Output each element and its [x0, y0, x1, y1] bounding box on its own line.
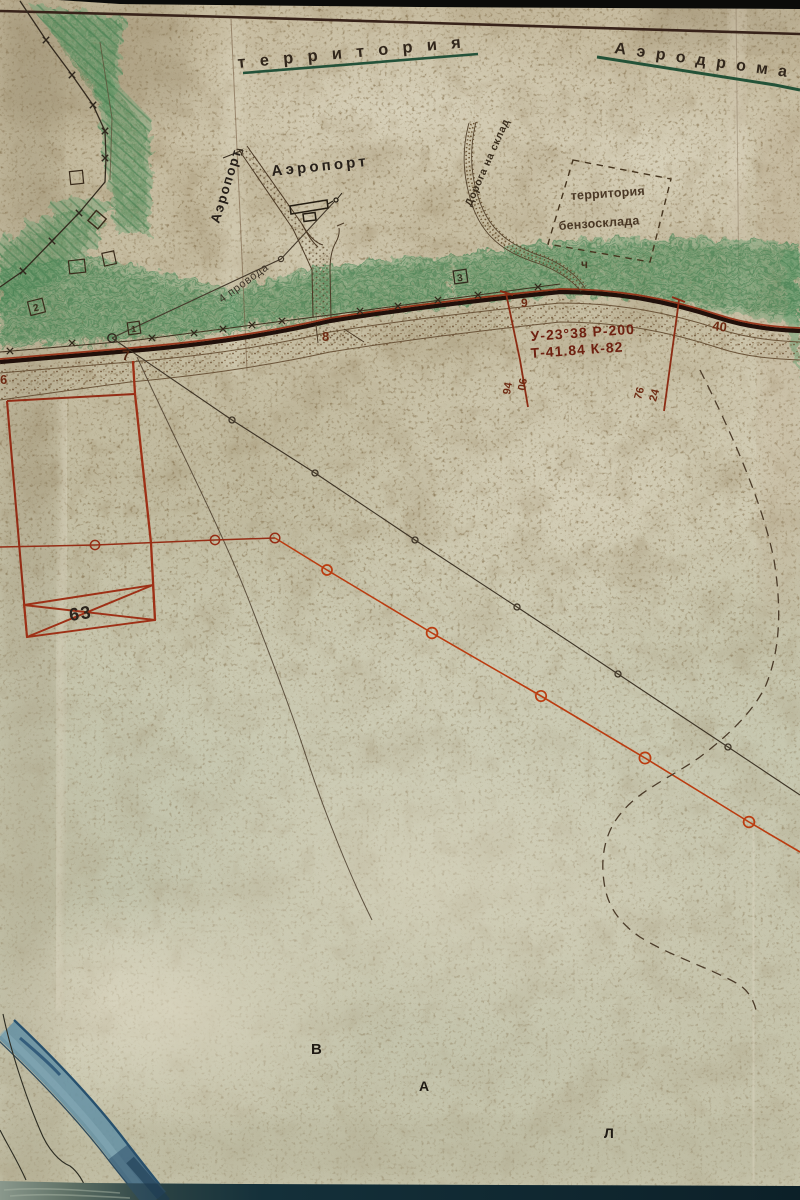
svg-text:ч: ч	[581, 257, 588, 271]
svg-text:В: В	[311, 1041, 322, 1058]
svg-text:8: 8	[322, 329, 329, 344]
svg-text:9: 9	[521, 296, 528, 310]
svg-text:Л: Л	[604, 1125, 614, 1141]
svg-text:40: 40	[712, 318, 728, 335]
svg-text:6: 6	[0, 372, 7, 387]
svg-text:06: 06	[516, 377, 530, 391]
svg-text:А: А	[419, 1078, 429, 1094]
svg-text:63: 63	[68, 602, 94, 625]
svg-text:7: 7	[122, 347, 130, 363]
